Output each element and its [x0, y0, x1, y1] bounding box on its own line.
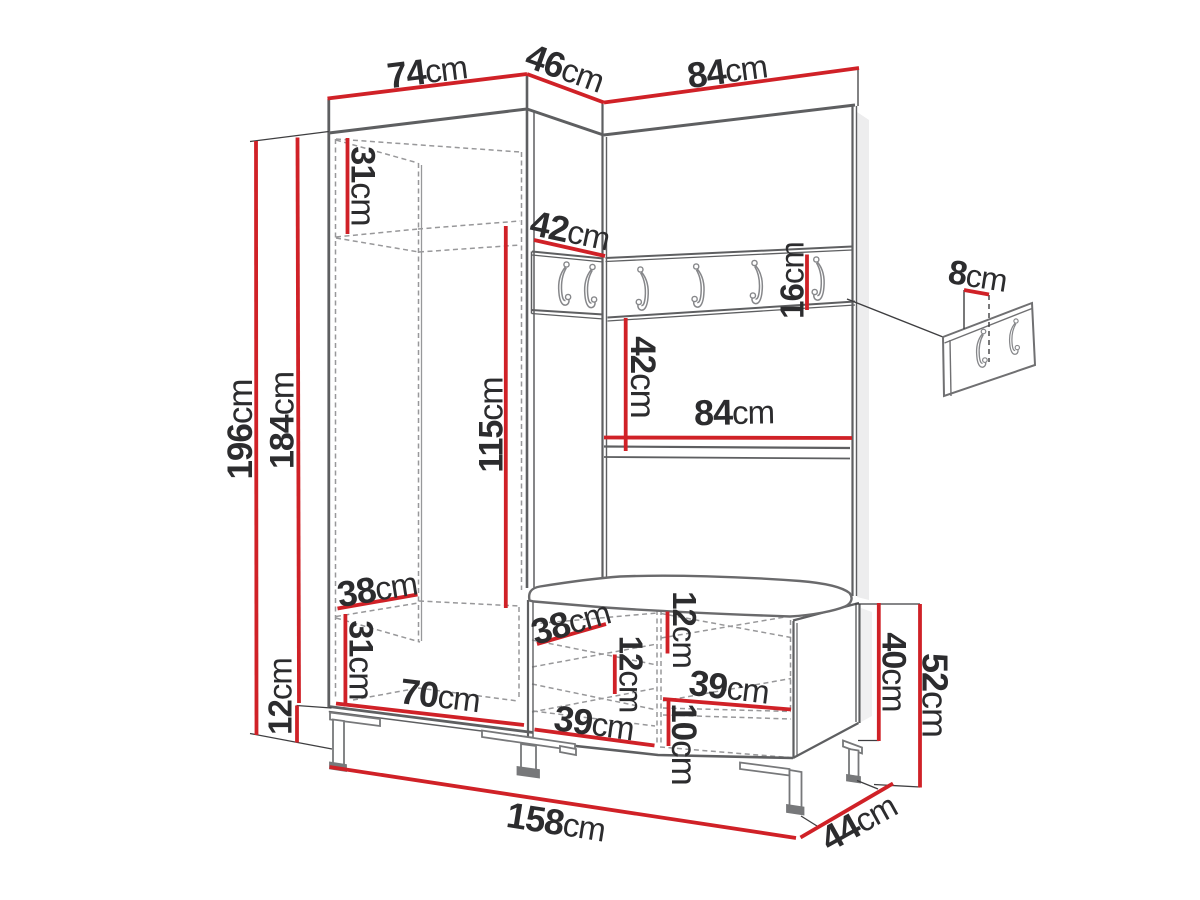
- svg-text:196cm: 196cm: [221, 379, 260, 479]
- svg-text:42cm: 42cm: [623, 336, 662, 418]
- svg-text:16cm: 16cm: [774, 242, 811, 319]
- svg-text:12cm: 12cm: [262, 658, 299, 735]
- svg-text:84cm: 84cm: [694, 391, 775, 433]
- svg-text:52cm: 52cm: [915, 653, 956, 737]
- svg-text:31cm: 31cm: [344, 146, 382, 225]
- svg-text:12cm: 12cm: [613, 636, 650, 713]
- svg-text:10cm: 10cm: [664, 703, 703, 785]
- svg-text:184cm: 184cm: [264, 372, 302, 469]
- svg-text:115cm: 115cm: [473, 377, 511, 472]
- svg-text:12cm: 12cm: [666, 591, 703, 668]
- svg-text:40cm: 40cm: [875, 632, 913, 711]
- svg-text:31cm: 31cm: [342, 620, 380, 699]
